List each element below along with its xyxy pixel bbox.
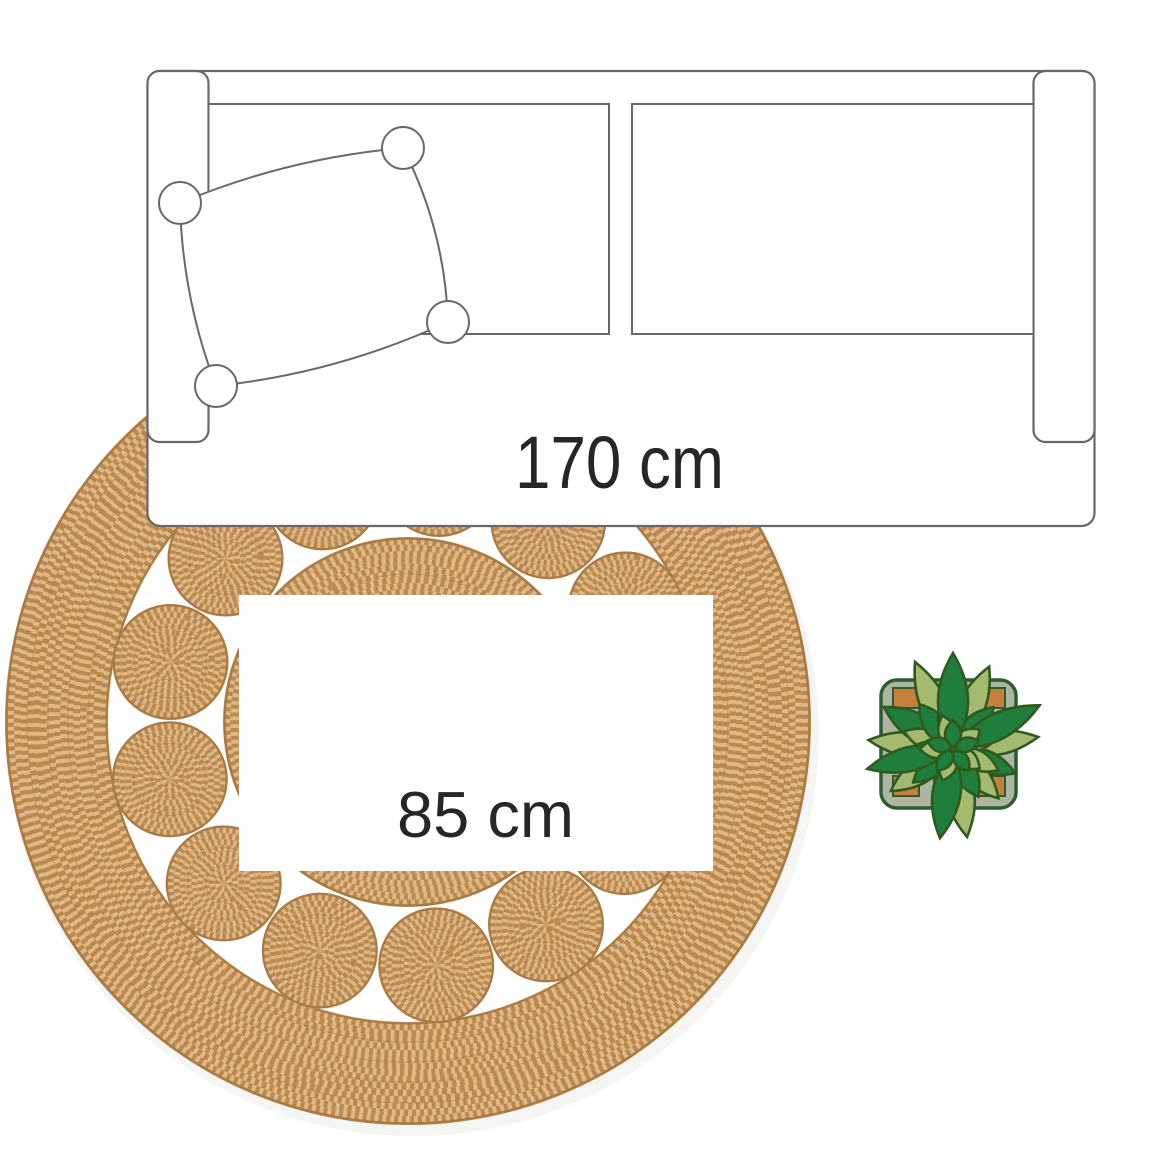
svg-text:170 cm: 170 cm [515,421,724,504]
svg-text:85 cm: 85 cm [397,779,574,851]
